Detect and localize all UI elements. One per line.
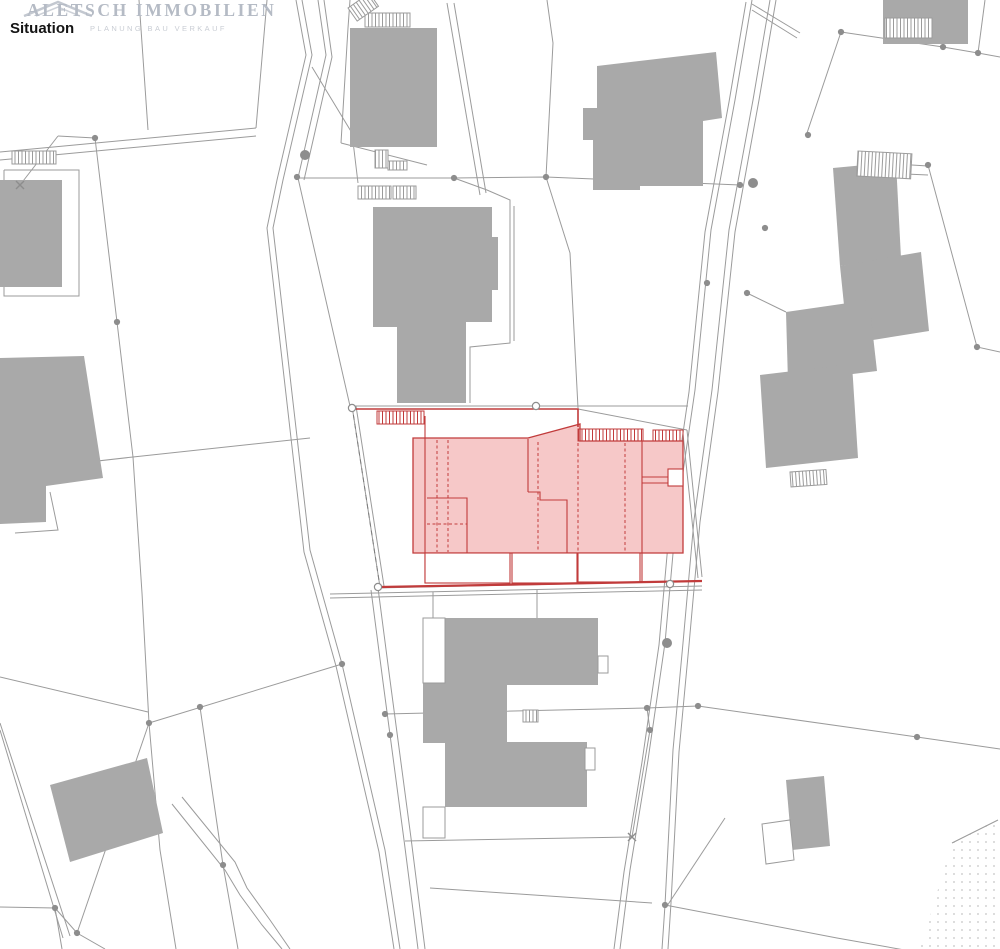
boundary-circle (532, 402, 539, 409)
building (583, 52, 722, 190)
survey-dot (114, 319, 120, 325)
stair-hatch (365, 13, 410, 27)
stair-hatch (790, 469, 827, 486)
stair-hatch (523, 710, 538, 722)
parcel-line (149, 664, 342, 723)
parcel-line (172, 804, 282, 949)
vegetation-area (920, 818, 1000, 949)
parcel-line (0, 723, 70, 936)
highlight-terrace (668, 469, 683, 486)
parcel-line (454, 3, 486, 193)
parcel-line (371, 590, 418, 949)
stair-hatch (358, 186, 391, 199)
survey-dot (744, 290, 750, 296)
stair-hatch (375, 150, 388, 168)
survey-dot (382, 711, 388, 717)
site-plan-svg (0, 0, 1000, 949)
parcel-line (546, 177, 578, 408)
building (373, 207, 498, 403)
site-plan (0, 0, 1000, 949)
parcel-line (256, 0, 267, 128)
parcel-line (298, 0, 350, 406)
building (445, 742, 587, 807)
survey-dot (451, 175, 457, 181)
survey-dot (975, 50, 981, 56)
building (445, 618, 598, 685)
boundary-circle (348, 404, 355, 411)
parcel-line (917, 737, 1000, 749)
highlight-terrace (578, 553, 640, 582)
building (350, 28, 437, 147)
parcel-line (447, 3, 480, 195)
boundary-circle (374, 583, 381, 590)
building (760, 364, 858, 468)
parcel-line (352, 406, 380, 587)
survey-dot (662, 902, 668, 908)
parcel-line (978, 0, 985, 53)
stair-hatch (393, 186, 416, 199)
stair-hatch (388, 161, 407, 170)
survey-dot (647, 727, 653, 733)
parcel-line (752, 4, 800, 33)
survey-dot (294, 174, 300, 180)
survey-dot (940, 44, 946, 50)
highlight-stair-hatch (377, 411, 424, 424)
highlight-terrace (512, 553, 577, 583)
highlight-stair-hatch (578, 429, 643, 441)
parcel-line (58, 136, 95, 138)
survey-dot-large (748, 178, 758, 188)
survey-dot-large (662, 638, 672, 648)
parcel-line (807, 32, 841, 133)
building (786, 776, 830, 850)
parcel-line (378, 588, 425, 949)
survey-dot (925, 162, 931, 168)
annex-outline (762, 820, 794, 864)
highlight-terrace (425, 553, 510, 583)
parcel-line (698, 706, 917, 737)
parcel-line (546, 0, 553, 177)
parcel-line (578, 409, 687, 430)
survey-dot (704, 280, 710, 286)
parcel-line (200, 707, 238, 949)
parcel-line (356, 406, 384, 586)
survey-dot (644, 705, 650, 711)
stair-hatch (857, 151, 912, 179)
annex-outline (585, 748, 595, 770)
survey-dot (146, 720, 152, 726)
annex-outline (423, 618, 445, 683)
parcel-line (928, 165, 1000, 352)
survey-dot (914, 734, 920, 740)
parcel-line (667, 818, 725, 906)
survey-dot (339, 661, 345, 667)
parcel-line (330, 590, 702, 598)
survey-dot (762, 225, 768, 231)
parcel-line (0, 677, 148, 712)
stair-hatch (12, 151, 56, 164)
building (0, 180, 62, 287)
stair-hatch (885, 18, 932, 38)
survey-dot (737, 182, 743, 188)
survey-dot (695, 703, 701, 709)
parcel-line (430, 888, 652, 903)
annex-outline (598, 656, 608, 673)
survey-dot (92, 135, 98, 141)
highlight-stair-hatch (653, 430, 683, 441)
survey-dot (543, 174, 549, 180)
building (50, 758, 163, 862)
parcel-line (133, 438, 310, 457)
parcel-line (747, 293, 786, 312)
survey-dot (974, 344, 980, 350)
parcel-line (182, 797, 290, 949)
parcel-line (687, 430, 702, 577)
survey-dot (220, 862, 226, 868)
annex-outline (423, 807, 445, 838)
parcel-line (0, 907, 62, 949)
survey-dot (74, 930, 80, 936)
survey-dot (805, 132, 811, 138)
building (423, 683, 507, 743)
boundary-circle (666, 580, 673, 587)
survey-dot (838, 29, 844, 35)
parcel-line (139, 0, 148, 130)
survey-dot-large (300, 150, 310, 160)
survey-dot (52, 905, 58, 911)
parcel-line (752, 10, 797, 38)
survey-dot (197, 704, 203, 710)
survey-dot (387, 732, 393, 738)
